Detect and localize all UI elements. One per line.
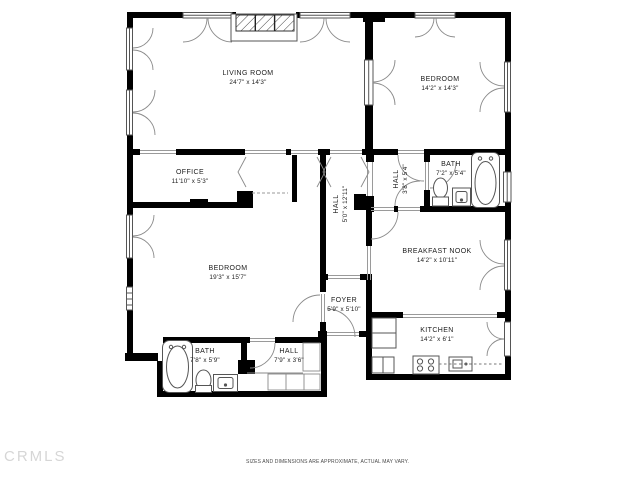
crmls-logo: CRMLS [4,448,67,465]
disclaimer-text: SIZES AND DIMENSIONS ARE APPROXIMATE, AC… [246,459,409,465]
sink-icon [453,188,471,206]
counter-corner [372,357,394,373]
door-swing-arcs [133,18,504,368]
floorplan-page: LIVING ROOM 24'7" x 14'3" BEDROOM 14'2" … [0,0,640,480]
refrigerator-icon [372,318,396,348]
fireplace-icon [231,14,297,41]
bath-bl-fixtures [163,341,238,393]
sink-icon [214,375,238,392]
toilet-icon [196,370,212,393]
stove-icon [413,356,439,374]
floorplan-drawing [0,0,640,480]
bathtub-icon [472,153,500,208]
toilet-icon [433,178,449,206]
kitchen-fixtures [372,318,503,374]
entry-steps [268,374,320,390]
bath-tr-fixtures [433,153,500,208]
bathtub-icon [163,341,193,393]
hall-closet [247,343,320,373]
